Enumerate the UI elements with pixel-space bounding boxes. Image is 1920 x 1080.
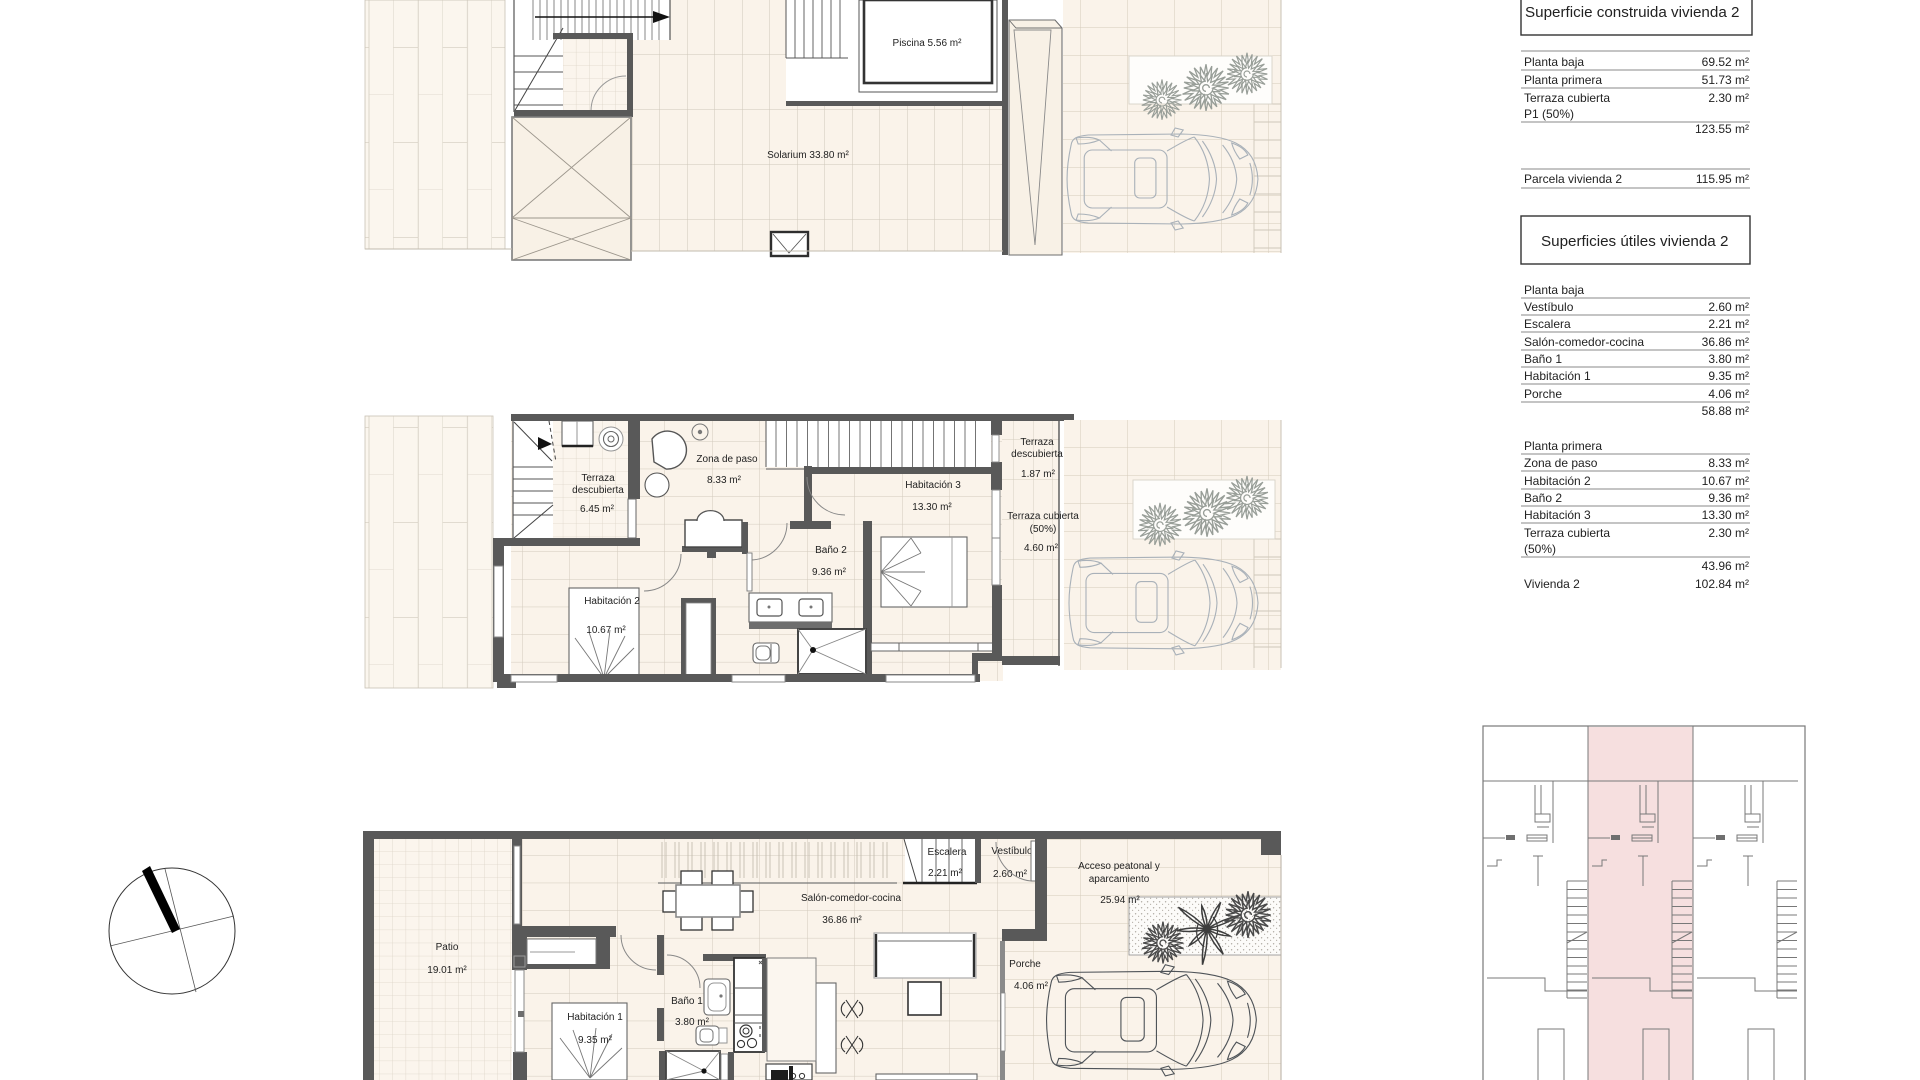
svg-text:descubierta: descubierta xyxy=(572,485,624,496)
svg-text:Baño 1: Baño 1 xyxy=(671,996,703,1007)
svg-text:Baño 1: Baño 1 xyxy=(1524,352,1562,366)
svg-text:2.60 m²: 2.60 m² xyxy=(993,869,1028,880)
svg-text:descubierta: descubierta xyxy=(1011,449,1063,460)
svg-text:Planta primera: Planta primera xyxy=(1524,73,1602,87)
svg-text:Terraza cubierta: Terraza cubierta xyxy=(1524,526,1610,540)
svg-text:Patio: Patio xyxy=(436,942,459,953)
svg-text:Salón-comedor-cocina: Salón-comedor-cocina xyxy=(1524,335,1644,349)
svg-text:13.30 m²: 13.30 m² xyxy=(1702,508,1749,522)
svg-text:69.52 m²: 69.52 m² xyxy=(1702,55,1749,69)
svg-text:Planta primera: Planta primera xyxy=(1524,439,1602,453)
svg-text:Habitación 2: Habitación 2 xyxy=(584,596,640,607)
svg-text:Salón-comedor-cocina: Salón-comedor-cocina xyxy=(801,893,901,904)
svg-text:aparcamiento: aparcamiento xyxy=(1089,874,1150,885)
svg-text:Solarium 33.80 m²: Solarium 33.80 m² xyxy=(767,150,849,161)
svg-text:Escalera: Escalera xyxy=(928,847,967,858)
svg-text:1.87 m²: 1.87 m² xyxy=(1021,469,1056,480)
svg-text:2.21 m²: 2.21 m² xyxy=(1708,317,1749,331)
svg-text:6.45 m²: 6.45 m² xyxy=(580,504,615,515)
svg-text:Vestíbulo: Vestíbulo xyxy=(1524,300,1574,314)
svg-text:Parcela vivienda 2: Parcela vivienda 2 xyxy=(1524,172,1622,186)
svg-text:Planta baja: Planta baja xyxy=(1524,283,1584,297)
svg-text:43.96 m²: 43.96 m² xyxy=(1702,559,1749,573)
svg-text:Habitación 2: Habitación 2 xyxy=(1524,474,1591,488)
svg-text:(50%): (50%) xyxy=(1030,524,1057,535)
svg-text:Terraza: Terraza xyxy=(581,473,615,484)
svg-text:2.30 m²: 2.30 m² xyxy=(1708,91,1749,105)
svg-text:51.73 m²: 51.73 m² xyxy=(1702,73,1749,87)
svg-text:58.88 m²: 58.88 m² xyxy=(1702,404,1749,418)
svg-text:P1 (50%): P1 (50%) xyxy=(1524,107,1574,121)
svg-text:Planta baja: Planta baja xyxy=(1524,55,1584,69)
svg-text:Habitación 1: Habitación 1 xyxy=(567,1012,623,1023)
svg-text:Baño 2: Baño 2 xyxy=(1524,491,1562,505)
svg-text:Superficie construida vivienda: Superficie construida vivienda 2 xyxy=(1525,4,1739,21)
svg-text:10.67 m²: 10.67 m² xyxy=(1702,474,1749,488)
svg-text:(50%): (50%) xyxy=(1524,542,1556,556)
svg-text:2.21 m²: 2.21 m² xyxy=(928,868,963,879)
svg-text:Terraza cubierta: Terraza cubierta xyxy=(1007,511,1079,522)
svg-text:3.80 m²: 3.80 m² xyxy=(1708,352,1749,366)
svg-text:Escalera: Escalera xyxy=(1524,317,1571,331)
svg-text:Baño 2: Baño 2 xyxy=(815,545,847,556)
svg-text:Piscina 5.56 m²: Piscina 5.56 m² xyxy=(893,38,963,49)
svg-text:Zona de paso: Zona de paso xyxy=(696,454,758,465)
svg-text:Terraza: Terraza xyxy=(1020,437,1054,448)
svg-text:36.86 m²: 36.86 m² xyxy=(822,915,862,926)
svg-text:Terraza cubierta: Terraza cubierta xyxy=(1524,91,1610,105)
svg-text:Porche: Porche xyxy=(1009,959,1041,970)
svg-text:10.67 m²: 10.67 m² xyxy=(586,625,626,636)
svg-text:102.84 m²: 102.84 m² xyxy=(1695,577,1749,591)
svg-text:25.94 m²: 25.94 m² xyxy=(1100,895,1140,906)
svg-text:4.06 m²: 4.06 m² xyxy=(1708,387,1749,401)
svg-text:4.06 m²: 4.06 m² xyxy=(1014,981,1049,992)
svg-text:19.01 m²: 19.01 m² xyxy=(427,965,467,976)
svg-text:36.86 m²: 36.86 m² xyxy=(1702,335,1749,349)
svg-text:Habitación 3: Habitación 3 xyxy=(1524,508,1591,522)
svg-text:Habitación 1: Habitación 1 xyxy=(1524,369,1591,383)
svg-text:9.36 m²: 9.36 m² xyxy=(812,567,847,578)
svg-text:115.95 m²: 115.95 m² xyxy=(1696,172,1749,186)
svg-text:9.36 m²: 9.36 m² xyxy=(1708,491,1749,505)
svg-text:Vivienda 2: Vivienda 2 xyxy=(1524,577,1580,591)
svg-text:2.60 m²: 2.60 m² xyxy=(1708,300,1749,314)
svg-text:2.30 m²: 2.30 m² xyxy=(1708,526,1749,540)
svg-text:Porche: Porche xyxy=(1524,387,1562,401)
svg-text:Habitación 3: Habitación 3 xyxy=(905,480,961,491)
svg-text:8.33 m²: 8.33 m² xyxy=(1708,456,1749,470)
svg-text:123.55 m²: 123.55 m² xyxy=(1695,122,1749,136)
svg-text:8.33 m²: 8.33 m² xyxy=(707,475,742,486)
svg-text:13.30 m²: 13.30 m² xyxy=(912,502,952,513)
svg-text:Superficies útiles vivienda 2: Superficies útiles vivienda 2 xyxy=(1541,233,1728,250)
svg-text:4.60 m²: 4.60 m² xyxy=(1024,543,1059,554)
svg-text:Zona de paso: Zona de paso xyxy=(1524,456,1598,470)
svg-text:Acceso peatonal y: Acceso peatonal y xyxy=(1078,861,1160,872)
svg-text:9.35 m²: 9.35 m² xyxy=(1708,369,1749,383)
svg-text:9.35 m²: 9.35 m² xyxy=(578,1035,613,1046)
